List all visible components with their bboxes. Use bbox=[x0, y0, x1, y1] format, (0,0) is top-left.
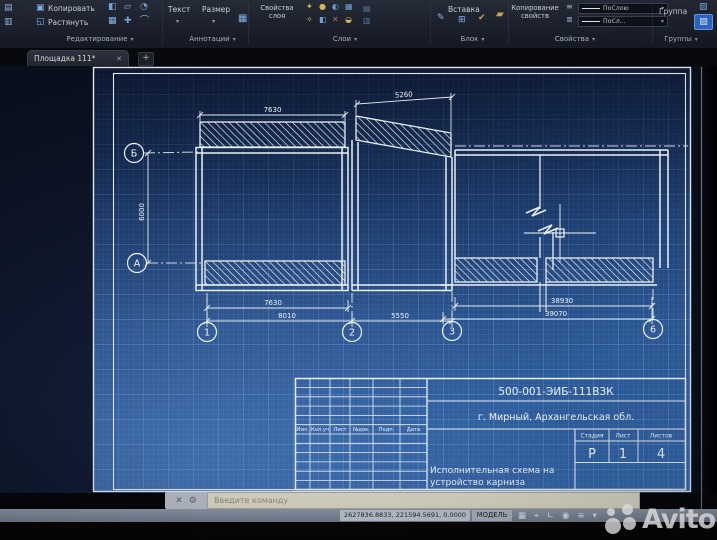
panel-title-annotation[interactable]: Аннотации▾ bbox=[165, 35, 260, 46]
osnap-toggle-icon[interactable]: ◉ bbox=[562, 511, 569, 521]
text-chevron-icon[interactable]: ▾ bbox=[176, 18, 179, 25]
command-customize-icon[interactable]: ⚙ bbox=[189, 496, 197, 506]
lineweight-toggle-icon[interactable]: ≡ bbox=[577, 511, 584, 521]
grid-area[interactable] bbox=[93, 69, 691, 491]
chevron-down-icon: ▾ bbox=[354, 36, 357, 43]
chevron-down-icon: ▾ bbox=[481, 36, 484, 43]
quick-access-icon-2[interactable]: ▥ bbox=[4, 18, 13, 27]
tab-close-icon[interactable]: ✕ bbox=[116, 55, 122, 63]
layer-thaw-icon[interactable]: ◒ bbox=[345, 15, 352, 24]
insert-button[interactable]: Вставка bbox=[448, 5, 480, 14]
ortho-toggle-icon[interactable]: ∟ bbox=[547, 511, 554, 521]
layer-delete-icon[interactable]: ✕ bbox=[332, 15, 339, 24]
panel-separator bbox=[248, 2, 249, 44]
file-tab-active[interactable]: Площадка 111* ✕ bbox=[27, 50, 129, 66]
chevron-down-icon: ▾ bbox=[592, 36, 595, 43]
ribbon: ▤ ▥ ▣ Копировать ◱ Растянуть ◧ ▱ ◔ ▦ ✚ ⌒… bbox=[0, 0, 717, 49]
command-close-icon[interactable]: ✕ bbox=[175, 496, 183, 506]
dimension-chevron-icon[interactable]: ▾ bbox=[212, 18, 215, 25]
layer-walk-icon[interactable]: ▤ bbox=[363, 4, 371, 13]
group-button[interactable]: Группа bbox=[659, 7, 687, 16]
avito-watermark: Avito bbox=[605, 498, 715, 540]
panel-title-modify[interactable]: Редактирование▾ bbox=[40, 35, 160, 46]
avito-logo-icon bbox=[605, 504, 638, 535]
chevron-down-icon: ▾ bbox=[661, 18, 664, 25]
file-tab-bar: Площадка 111* ✕ + bbox=[0, 48, 717, 66]
avito-brand-text: Avito bbox=[642, 504, 715, 535]
layer-freeze-icon[interactable]: ● bbox=[319, 2, 326, 11]
stretch-button[interactable]: Растянуть bbox=[48, 18, 88, 27]
stretch-icon: ◱ bbox=[36, 18, 45, 27]
layer-isolate-icon[interactable]: ◐ bbox=[332, 2, 339, 11]
fillet-icon[interactable]: ⌒ bbox=[140, 17, 149, 26]
table-icon[interactable]: ▦ bbox=[238, 13, 247, 24]
match-properties-button[interactable]: Копирование свойств bbox=[508, 4, 562, 20]
ungroup-icon[interactable]: ▧ bbox=[699, 2, 708, 12]
array-icon[interactable]: ▦ bbox=[108, 17, 117, 26]
layer-on-icon[interactable]: ✦ bbox=[306, 2, 313, 11]
command-line-controls: ✕ ⚙ bbox=[165, 492, 207, 509]
panel-title-groups[interactable]: Группы▾ bbox=[645, 35, 717, 46]
layer-off-icon[interactable]: ✧ bbox=[306, 15, 313, 24]
chevron-down-icon: ▾ bbox=[233, 36, 236, 43]
move-icon[interactable]: ✚ bbox=[124, 17, 132, 26]
copy-button[interactable]: Копировать bbox=[48, 4, 95, 13]
new-tab-button[interactable]: + bbox=[138, 52, 154, 66]
layer-lock-icon[interactable]: ◧ bbox=[319, 15, 327, 24]
layer-properties-button[interactable]: Свойства слоя bbox=[252, 4, 302, 20]
layer-match-icon[interactable]: ▦ bbox=[345, 2, 353, 11]
panel-title-layers[interactable]: Слои▾ bbox=[300, 35, 390, 46]
layer-state-icon[interactable]: ▥ bbox=[363, 16, 371, 25]
match-properties-icon: ▰ bbox=[496, 9, 504, 20]
panel-separator bbox=[430, 2, 431, 44]
panel-separator bbox=[162, 2, 163, 44]
dimension-button[interactable]: Размер bbox=[202, 5, 230, 14]
group-selected-button[interactable]: ▨ bbox=[694, 14, 713, 30]
line-sample bbox=[582, 8, 600, 10]
linetype-icon: ≣ bbox=[566, 15, 573, 24]
command-line-input[interactable]: Введите команду bbox=[207, 492, 640, 509]
linetype-dropdown[interactable]: ПоСл... ▾ bbox=[578, 16, 668, 27]
file-tab-label: Площадка 111* bbox=[34, 54, 95, 63]
lineweight-dropdown[interactable]: ПоСлою ▾ bbox=[578, 3, 668, 14]
attribute-check-icon[interactable]: ✔ bbox=[478, 13, 486, 23]
panel-title-properties[interactable]: Свойства▾ bbox=[535, 35, 615, 46]
chevron-down-icon: ▾ bbox=[131, 36, 134, 43]
text-button[interactable]: Текст bbox=[168, 5, 190, 14]
autocad-window: ▤ ▥ ▣ Копировать ◱ Растянуть ◧ ▱ ◔ ▦ ✚ ⌒… bbox=[0, 0, 717, 540]
chevron-down-icon: ▾ bbox=[695, 36, 698, 43]
panel-title-block[interactable]: Блок▾ bbox=[435, 35, 510, 46]
grid-toggle-icon[interactable]: ▦ bbox=[518, 511, 526, 521]
trim-icon[interactable]: ◔ bbox=[140, 3, 148, 12]
copy-icon: ▣ bbox=[36, 4, 45, 13]
quick-access-icon-1[interactable]: ▤ bbox=[4, 4, 13, 13]
block-insert-icon[interactable]: ⊞ bbox=[458, 15, 466, 25]
offset-icon[interactable]: ▱ bbox=[124, 3, 131, 12]
command-prompt: Введите команду bbox=[214, 496, 288, 505]
lineweight-icon: ≡ bbox=[566, 2, 573, 11]
coordinates-readout[interactable]: 2627836.8833, 221594.5691, 0.0000 bbox=[340, 510, 470, 521]
status-chevron-icon[interactable]: ▾ bbox=[593, 511, 597, 521]
block-edit-icon[interactable]: ✎ bbox=[437, 13, 445, 23]
screen-right-edge bbox=[694, 66, 717, 493]
status-toggles: ▦ ⌖ ∟ ◉ ≡ ▾ bbox=[518, 509, 597, 522]
mirror-icon[interactable]: ◧ bbox=[108, 3, 117, 12]
model-space-button[interactable]: МОДЕЛЬ bbox=[472, 510, 512, 521]
line-sample bbox=[582, 21, 600, 23]
group-icon: ▨ bbox=[699, 17, 708, 27]
snap-toggle-icon[interactable]: ⌖ bbox=[534, 511, 539, 521]
